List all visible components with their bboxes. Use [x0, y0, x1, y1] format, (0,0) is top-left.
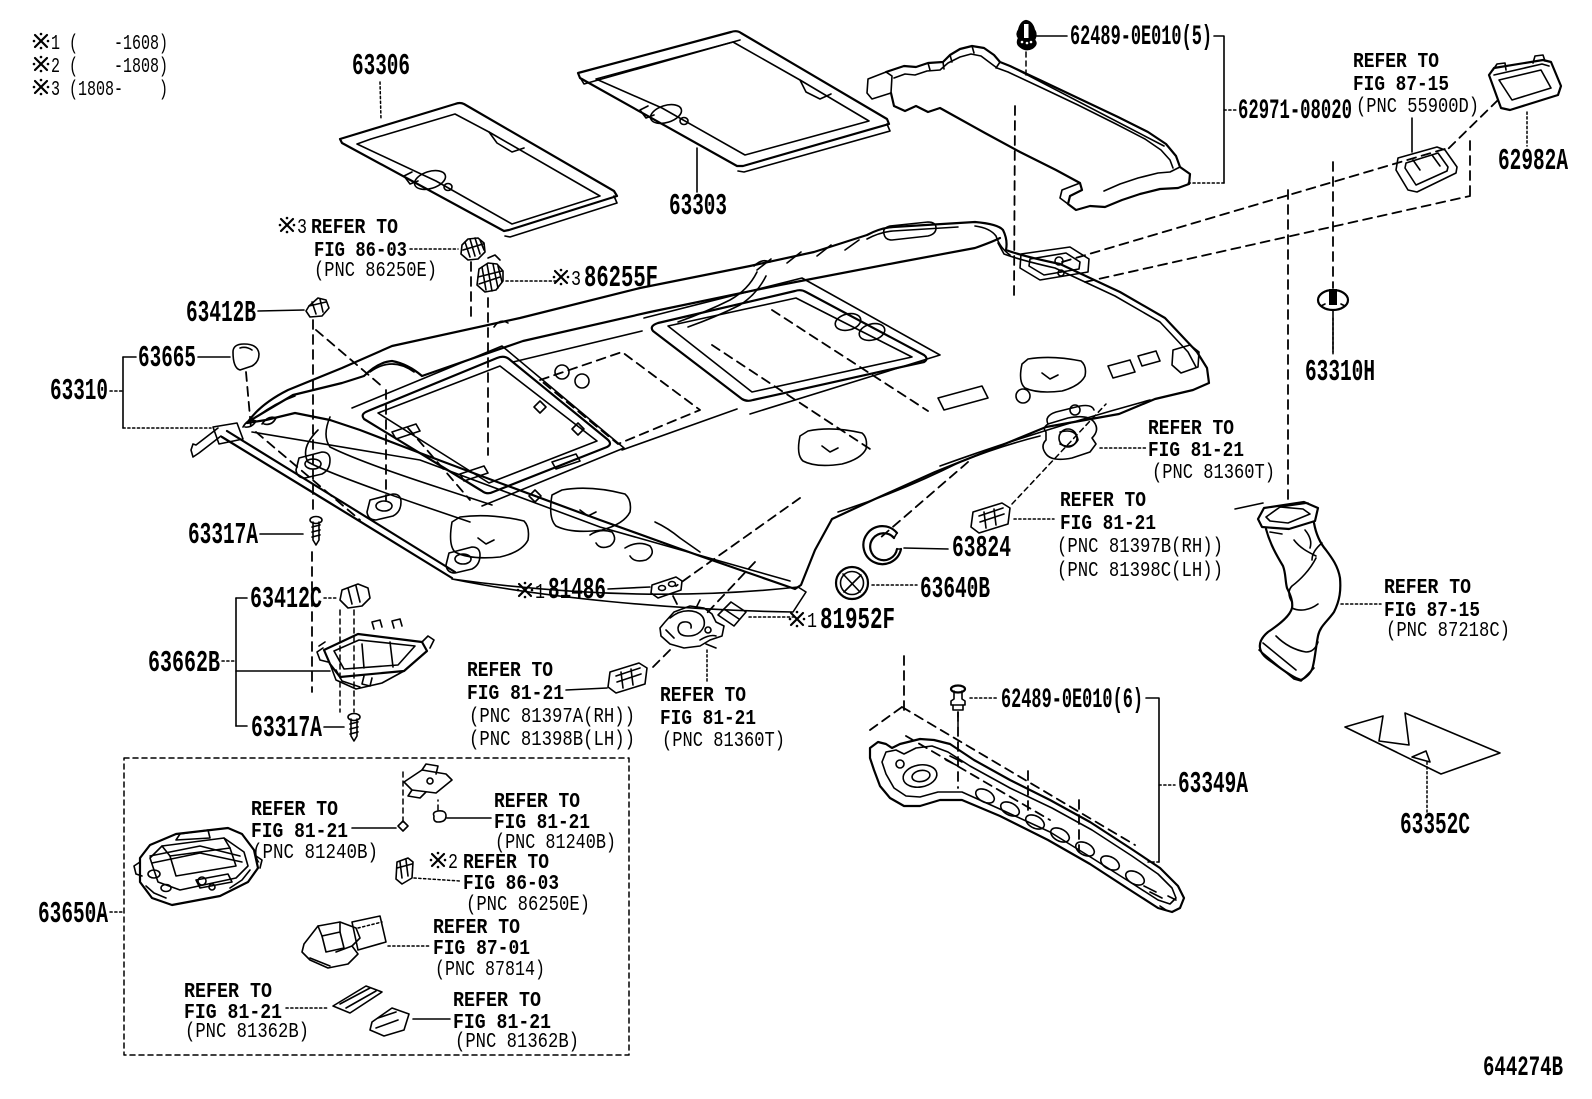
- svg-text:(PNC 81362B): (PNC 81362B): [185, 1021, 309, 1044]
- svg-text:86255F: 86255F: [584, 261, 658, 296]
- svg-text:REFER TO: REFER TO: [467, 660, 553, 683]
- svg-text:63824: 63824: [952, 531, 1011, 566]
- svg-text:63349A: 63349A: [1178, 767, 1248, 802]
- svg-text:63412B: 63412B: [186, 296, 256, 331]
- svg-text:FIG 86-03: FIG 86-03: [463, 873, 559, 896]
- svg-text:63662B: 63662B: [148, 646, 220, 681]
- svg-text:(PNC 81240B): (PNC 81240B): [252, 842, 378, 865]
- svg-text:(PNC 86250E): (PNC 86250E): [314, 260, 437, 283]
- svg-text:(PNC 55900D): (PNC 55900D): [1356, 96, 1479, 119]
- svg-text:FIG 87-01: FIG 87-01: [433, 938, 530, 961]
- svg-text:REFER TO: REFER TO: [494, 791, 580, 814]
- svg-text:REFER TO: REFER TO: [1060, 490, 1146, 513]
- svg-text:2: 2: [448, 852, 458, 875]
- svg-text:63310: 63310: [50, 374, 108, 409]
- svg-text:REFER TO: REFER TO: [453, 990, 541, 1013]
- svg-text:63650A: 63650A: [38, 897, 108, 932]
- svg-text:3 (1808- ): 3 (1808- ): [51, 79, 168, 102]
- svg-text:63306: 63306: [352, 49, 410, 84]
- svg-text:REFER TO: REFER TO: [463, 852, 549, 875]
- svg-text:(PNC 81362B): (PNC 81362B): [455, 1031, 579, 1054]
- svg-text:(PNC 81360T): (PNC 81360T): [662, 730, 785, 753]
- svg-text:63317A: 63317A: [251, 711, 322, 746]
- svg-text:(PNC 81397B(RH)): (PNC 81397B(RH)): [1057, 536, 1223, 559]
- svg-text:FIG 87-15: FIG 87-15: [1353, 74, 1449, 97]
- svg-text:62489-0E010(6): 62489-0E010(6): [1001, 685, 1143, 716]
- svg-text:63640B: 63640B: [920, 572, 990, 607]
- svg-text:1: 1: [807, 611, 817, 634]
- svg-text:62971-08020: 62971-08020: [1238, 96, 1352, 127]
- svg-text:(PNC 81360T): (PNC 81360T): [1152, 462, 1275, 485]
- svg-text:REFER TO: REFER TO: [311, 217, 398, 240]
- svg-text:(PNC 81398B(LH)): (PNC 81398B(LH)): [469, 729, 635, 752]
- svg-text:63665: 63665: [138, 341, 196, 376]
- svg-text:63303: 63303: [669, 189, 727, 224]
- svg-text:62489-0E010(5): 62489-0E010(5): [1070, 22, 1212, 53]
- svg-text:FIG 81-21: FIG 81-21: [251, 821, 348, 844]
- svg-text:3: 3: [571, 269, 581, 292]
- svg-text:REFER TO: REFER TO: [433, 917, 520, 940]
- svg-text:FIG 81-21: FIG 81-21: [1148, 440, 1244, 463]
- svg-text:REFER TO: REFER TO: [660, 685, 746, 708]
- svg-text:FIG 81-21: FIG 81-21: [660, 708, 756, 731]
- svg-text:63317A: 63317A: [188, 518, 258, 553]
- svg-text:REFER TO: REFER TO: [1148, 418, 1234, 441]
- svg-text:62982A: 62982A: [1498, 144, 1568, 179]
- svg-text:(PNC 81398C(LH)): (PNC 81398C(LH)): [1057, 560, 1223, 583]
- svg-text:63352C: 63352C: [1400, 808, 1470, 843]
- svg-text:REFER TO: REFER TO: [1384, 577, 1471, 600]
- svg-text:FIG 81-21: FIG 81-21: [1060, 513, 1156, 536]
- svg-text:3: 3: [297, 217, 307, 240]
- svg-text:REFER TO: REFER TO: [1353, 51, 1439, 74]
- svg-text:81952F: 81952F: [820, 603, 895, 638]
- svg-text:63310H: 63310H: [1305, 355, 1375, 390]
- svg-text:(PNC 81397A(RH)): (PNC 81397A(RH)): [469, 706, 635, 729]
- svg-text:REFER TO: REFER TO: [184, 981, 272, 1004]
- svg-text:2 ( -1808): 2 ( -1808): [51, 56, 168, 79]
- svg-text:REFER TO: REFER TO: [251, 799, 338, 822]
- svg-text:(PNC 87218C): (PNC 87218C): [1386, 620, 1510, 643]
- svg-text:1 ( -1608): 1 ( -1608): [51, 33, 168, 56]
- svg-text:644274B: 644274B: [1483, 1053, 1563, 1084]
- svg-text:(PNC 87814): (PNC 87814): [435, 959, 545, 982]
- svg-text:FIG 81-21: FIG 81-21: [467, 683, 564, 706]
- svg-text:(PNC 86250E): (PNC 86250E): [466, 894, 590, 917]
